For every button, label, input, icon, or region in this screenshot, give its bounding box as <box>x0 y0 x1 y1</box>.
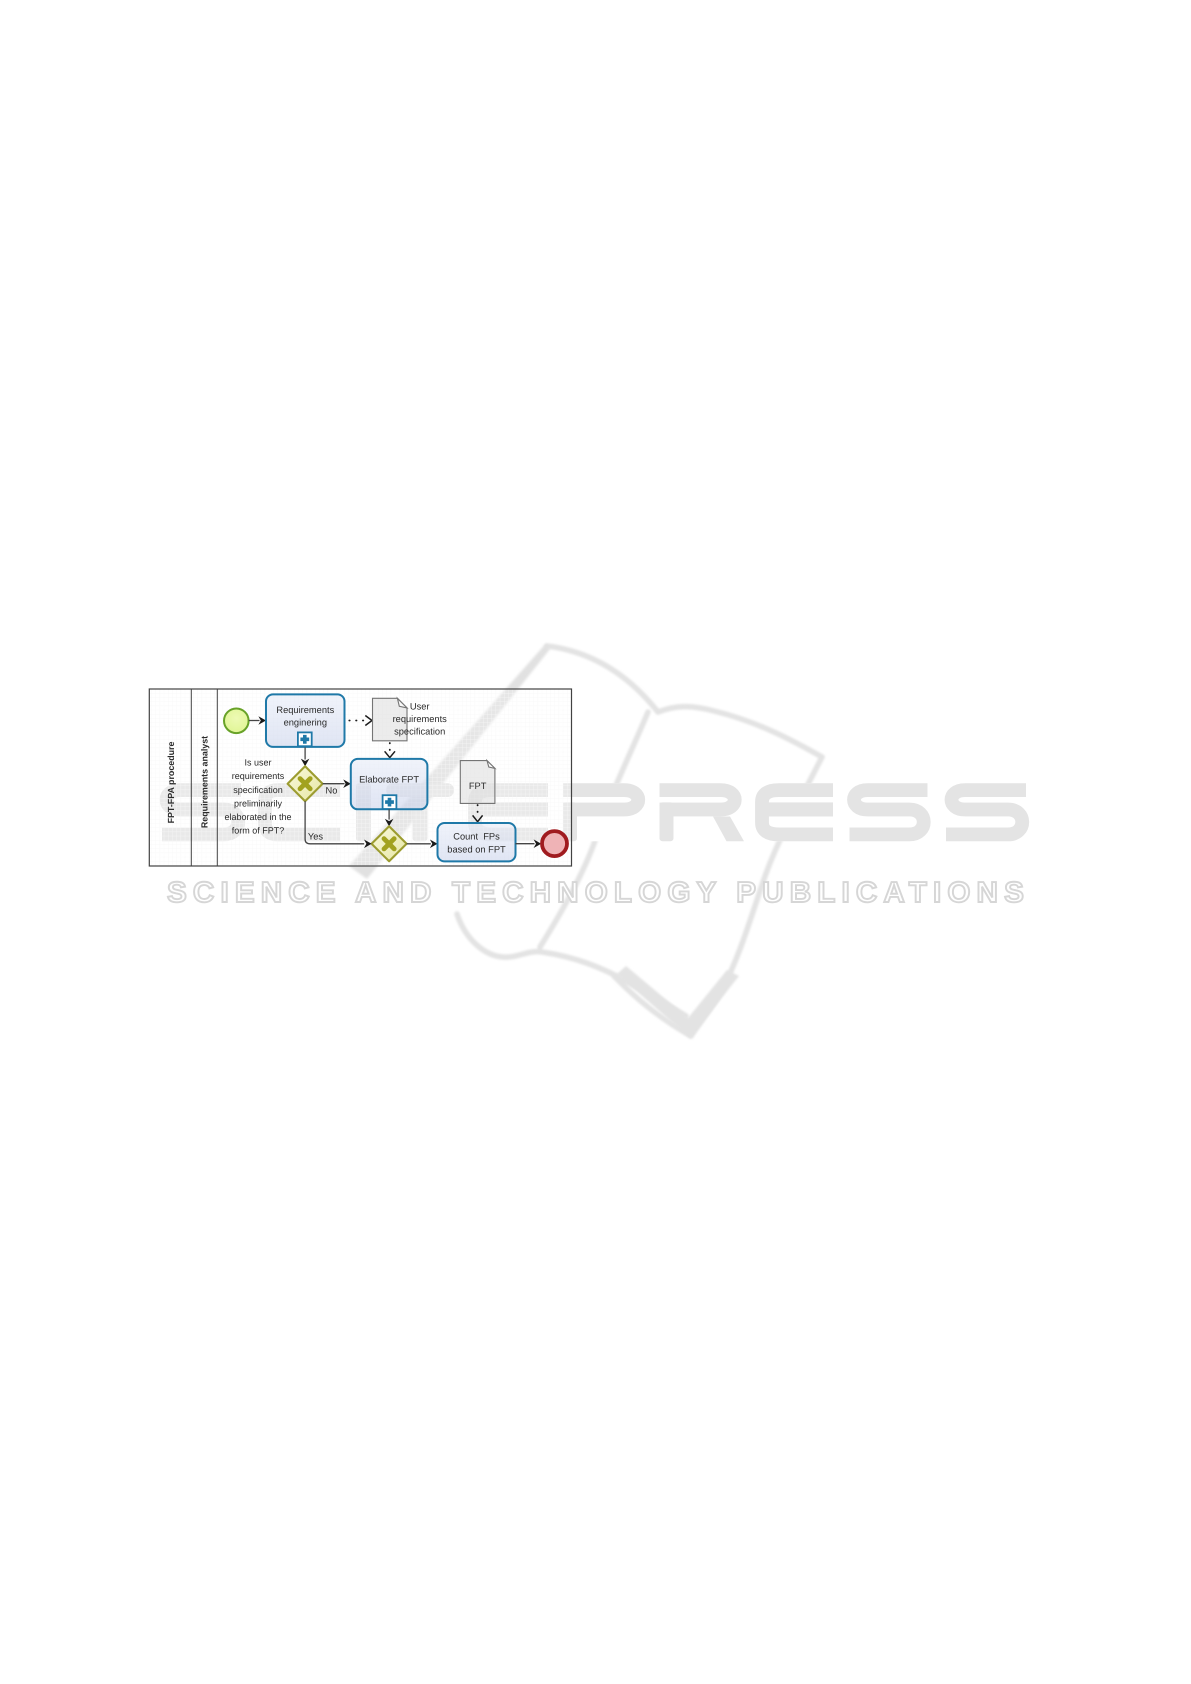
svg-text:based on FPT: based on FPT <box>447 844 506 854</box>
svg-text:preliminarily: preliminarily <box>234 799 283 809</box>
svg-text:requirements: requirements <box>232 771 285 781</box>
svg-text:specification: specification <box>233 785 283 795</box>
svg-text:Yes: Yes <box>308 832 324 842</box>
svg-text:User: User <box>410 702 430 712</box>
svg-text:Requirements analyst: Requirements analyst <box>200 736 210 828</box>
svg-text:Is user: Is user <box>244 758 271 768</box>
svg-text:SCIENCE AND TECHNOLOGY PUBLICA: SCIENCE AND TECHNOLOGY PUBLICATIONS <box>167 877 1030 909</box>
svg-text:No: No <box>326 785 338 795</box>
svg-text:FPT-FPA procedure: FPT-FPA procedure <box>166 742 176 824</box>
svg-text:specification: specification <box>394 726 445 736</box>
svg-text:requirements: requirements <box>393 714 448 724</box>
svg-text:form of FPT?: form of FPT? <box>232 825 285 835</box>
svg-text:FPT: FPT <box>469 781 487 791</box>
svg-text:Elaborate FPT: Elaborate FPT <box>359 775 419 785</box>
svg-text:enginering: enginering <box>284 718 327 728</box>
svg-text:elaborated in the: elaborated in the <box>224 812 291 822</box>
svg-text:Requirements: Requirements <box>276 705 334 715</box>
svg-text:Count FPs: Count FPs <box>453 832 500 842</box>
